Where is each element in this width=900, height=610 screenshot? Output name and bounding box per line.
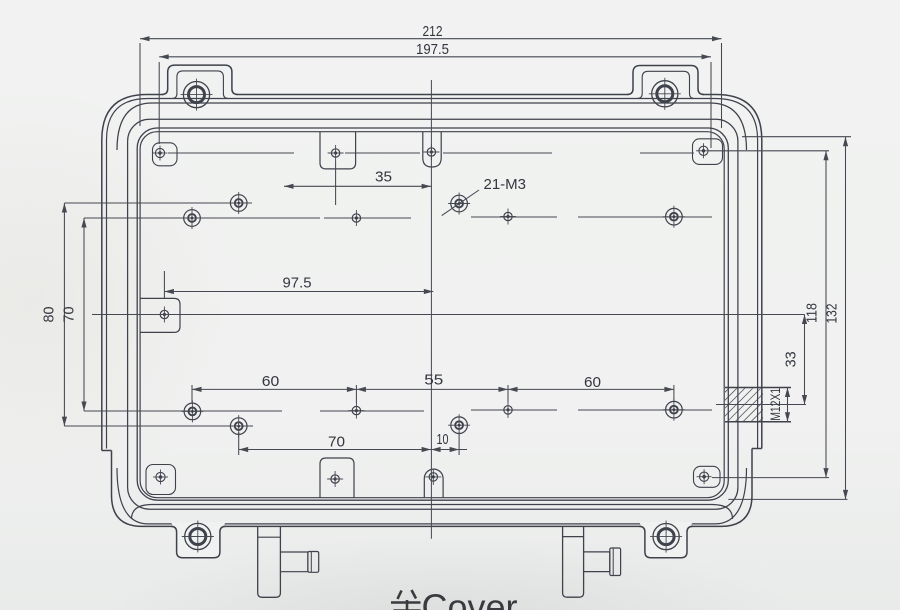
svg-text:118: 118	[804, 303, 821, 323]
svg-text:197.5: 197.5	[416, 41, 449, 58]
svg-text:212: 212	[423, 23, 443, 40]
svg-text:70: 70	[61, 307, 78, 323]
svg-text:35: 35	[375, 169, 392, 186]
svg-text:60: 60	[262, 373, 280, 390]
svg-text:Cover: Cover	[422, 587, 518, 610]
svg-text:97.5: 97.5	[283, 275, 312, 292]
svg-text:132: 132	[823, 304, 840, 324]
svg-text:70: 70	[328, 434, 345, 451]
svg-text:33: 33	[783, 351, 800, 367]
svg-text:80: 80	[41, 307, 58, 323]
svg-text:55: 55	[424, 372, 443, 389]
svg-text:M12X1: M12X1	[767, 388, 783, 421]
svg-text:60: 60	[584, 374, 601, 391]
svg-text:21-M3: 21-M3	[484, 176, 527, 193]
svg-text:10: 10	[437, 431, 449, 448]
